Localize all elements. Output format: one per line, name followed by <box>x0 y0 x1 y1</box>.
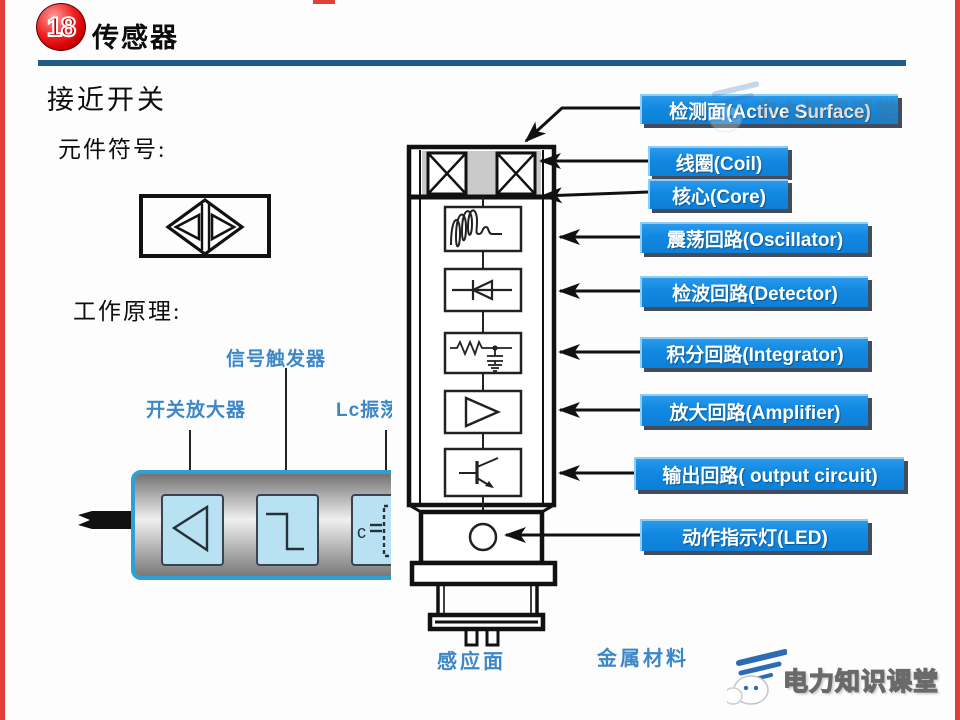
watermark-faint: 电力知识课堂 <box>704 80 902 135</box>
callout-led: 动作指示灯(LED) <box>640 519 868 551</box>
amplifier-block-main <box>445 391 521 433</box>
label-metal-material: 金属材料 <box>597 642 689 671</box>
watermark-text: 电力知识课堂 <box>783 662 939 698</box>
callout-integrator: 积分回路(Integrator) <box>640 337 868 368</box>
watermark-faint-text: 电力知识课堂 <box>755 93 899 126</box>
callout-detector: 检波回路(Detector) <box>640 276 868 307</box>
integrator-block <box>445 333 521 373</box>
watermark: 电力知识课堂 <box>727 648 942 708</box>
callout-core: 核心(Core) <box>648 179 788 209</box>
arrow-core <box>542 192 648 196</box>
sensing-tip <box>430 584 543 645</box>
watermark-logo-icon <box>727 648 787 708</box>
callout-oscillator: 震荡回路(Oscillator) <box>640 222 868 253</box>
callout-coil: 线圈(Coil) <box>648 146 788 176</box>
label-signal-trigger: 信号触发器 <box>226 344 326 371</box>
led-indicator-icon <box>470 524 496 550</box>
callout-amplifier: 放大回路(Amplifier) <box>640 394 868 426</box>
sensor-cross-section <box>409 147 555 645</box>
flange-top <box>412 563 555 584</box>
slide: 18 传感器 接近开关 元件符号: 工作原理: <box>0 0 960 720</box>
amplifier-block <box>162 495 223 565</box>
cable <box>78 511 140 529</box>
watermark-faint-logo-icon <box>704 80 759 135</box>
svg-text:c: c <box>357 522 366 542</box>
arrow-active-surface <box>526 108 640 141</box>
proximity-switch-symbol <box>141 196 269 256</box>
label-lc-oscillator: Lc振荡 <box>336 395 392 422</box>
output-block <box>445 449 521 496</box>
label-sensing-surface: 感应面 <box>437 645 506 674</box>
label-switch-amplifier: 开关放大器 <box>146 395 246 422</box>
callout-output: 输出回路( output circuit) <box>634 457 904 490</box>
